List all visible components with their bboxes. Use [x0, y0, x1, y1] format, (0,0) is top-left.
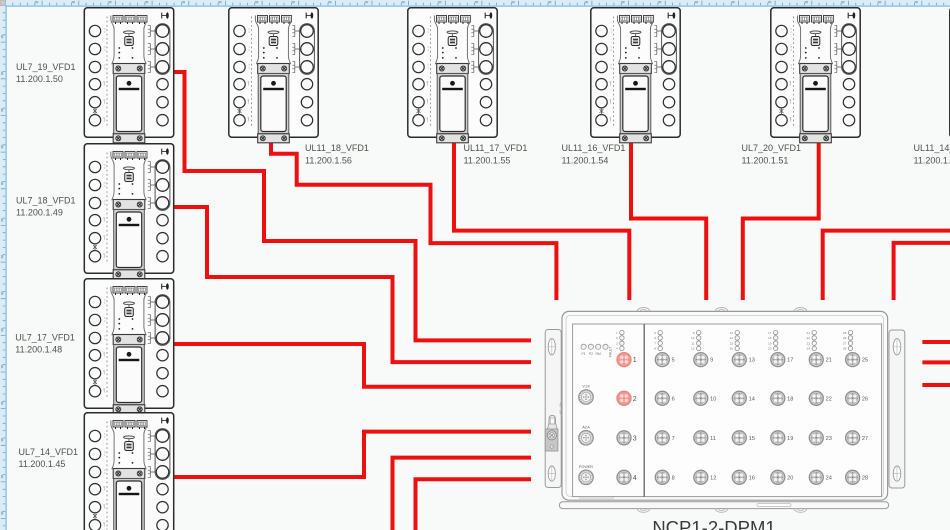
svg-text:6: 6	[672, 396, 675, 402]
svg-text:UL7_17_VFD1: UL7_17_VFD1	[15, 333, 75, 343]
svg-text:11.200.1.51: 11.200.1.51	[742, 155, 789, 165]
svg-text:6: 6	[654, 336, 656, 340]
svg-text:16: 16	[749, 475, 755, 481]
svg-text:15: 15	[730, 341, 734, 345]
svg-text:11.200.1.44: 11.200.1.44	[914, 155, 950, 165]
svg-text:14: 14	[749, 396, 755, 402]
svg-text:1: 1	[616, 331, 618, 335]
svg-text:2: 2	[633, 396, 637, 403]
svg-text:21: 21	[807, 331, 811, 335]
svg-text:9: 9	[710, 358, 713, 364]
svg-text:NCP1-2-DPM1: NCP1-2-DPM1	[652, 517, 775, 530]
svg-text:28: 28	[843, 347, 847, 351]
svg-text:UL7_14_VFD1: UL7_14_VFD1	[19, 447, 79, 457]
svg-text:23: 23	[826, 436, 832, 442]
svg-text:UL11_14_VFD1: UL11_14_VFD1	[914, 143, 950, 153]
svg-text:8: 8	[672, 475, 675, 481]
svg-text:1: 1	[633, 357, 637, 364]
svg-text:8: 8	[654, 347, 656, 351]
svg-text:10: 10	[691, 336, 695, 340]
svg-text:25: 25	[843, 331, 847, 335]
svg-text:14: 14	[730, 336, 734, 340]
svg-text:15: 15	[749, 436, 755, 442]
svg-text:FAULT: FAULT	[609, 347, 613, 357]
svg-text:26: 26	[843, 336, 847, 340]
svg-text:POWER: POWER	[579, 465, 593, 469]
svg-text:19: 19	[768, 341, 772, 345]
svg-text:UL11_16_VFD1: UL11_16_VFD1	[562, 143, 626, 153]
svg-text:UL11_17_VFD1: UL11_17_VFD1	[464, 143, 528, 153]
svg-text:26: 26	[862, 396, 868, 402]
svg-text:22: 22	[807, 336, 811, 340]
svg-text:5: 5	[654, 331, 656, 335]
svg-text:20: 20	[768, 347, 772, 351]
svg-text:24: 24	[807, 347, 811, 351]
svg-text:19: 19	[787, 436, 793, 442]
svg-text:UL7_19_VFD1: UL7_19_VFD1	[16, 62, 76, 72]
svg-text:2: 2	[616, 336, 618, 340]
svg-text:3: 3	[633, 435, 637, 442]
svg-text:27: 27	[862, 436, 868, 442]
svg-text:18: 18	[768, 336, 772, 340]
svg-text:12: 12	[691, 347, 695, 351]
svg-text:20: 20	[787, 475, 793, 481]
svg-text:P1: P1	[582, 352, 586, 356]
svg-text:7: 7	[672, 436, 675, 442]
svg-text:11: 11	[710, 436, 716, 442]
svg-text:11.200.1.50: 11.200.1.50	[16, 74, 63, 84]
svg-text:24: 24	[826, 475, 832, 481]
svg-text:18: 18	[787, 396, 793, 402]
svg-text:P2: P2	[589, 352, 593, 356]
svg-text:13: 13	[730, 331, 734, 335]
svg-text:16: 16	[730, 347, 734, 351]
svg-text:V.24: V.24	[582, 385, 589, 389]
svg-text:21: 21	[826, 358, 832, 364]
svg-text:12: 12	[710, 475, 716, 481]
svg-text:9: 9	[693, 331, 695, 335]
svg-text:13: 13	[749, 358, 755, 364]
svg-text:17: 17	[768, 331, 772, 335]
svg-text:23: 23	[807, 341, 811, 345]
svg-text:17: 17	[787, 358, 793, 364]
svg-text:22: 22	[826, 396, 832, 402]
svg-text:UL7_20_VFD1: UL7_20_VFD1	[742, 143, 802, 153]
svg-text:3: 3	[616, 341, 618, 345]
svg-text:11: 11	[691, 341, 694, 345]
svg-text:11.200.1.48: 11.200.1.48	[15, 345, 62, 355]
svg-text:5: 5	[672, 358, 675, 364]
svg-text:25: 25	[862, 358, 868, 364]
svg-text:28: 28	[862, 475, 868, 481]
svg-text:27: 27	[843, 341, 847, 345]
svg-text:11.200.1.54: 11.200.1.54	[562, 155, 609, 165]
svg-text:11.200.1.56: 11.200.1.56	[305, 155, 352, 165]
svg-text:4: 4	[633, 475, 637, 482]
svg-text:10: 10	[710, 396, 716, 402]
svg-text:RM: RM	[596, 352, 601, 356]
svg-text:ACA: ACA	[582, 425, 590, 429]
svg-text:UL7_18_VFD1: UL7_18_VFD1	[16, 196, 76, 206]
svg-text:11.200.1.45: 11.200.1.45	[19, 459, 66, 469]
svg-text:11.200.1.55: 11.200.1.55	[464, 155, 511, 165]
svg-text:UL11_18_VFD1: UL11_18_VFD1	[305, 143, 369, 153]
svg-text:4: 4	[616, 347, 618, 351]
svg-text:11.200.1.49: 11.200.1.49	[16, 208, 63, 218]
svg-text:7: 7	[654, 341, 656, 345]
